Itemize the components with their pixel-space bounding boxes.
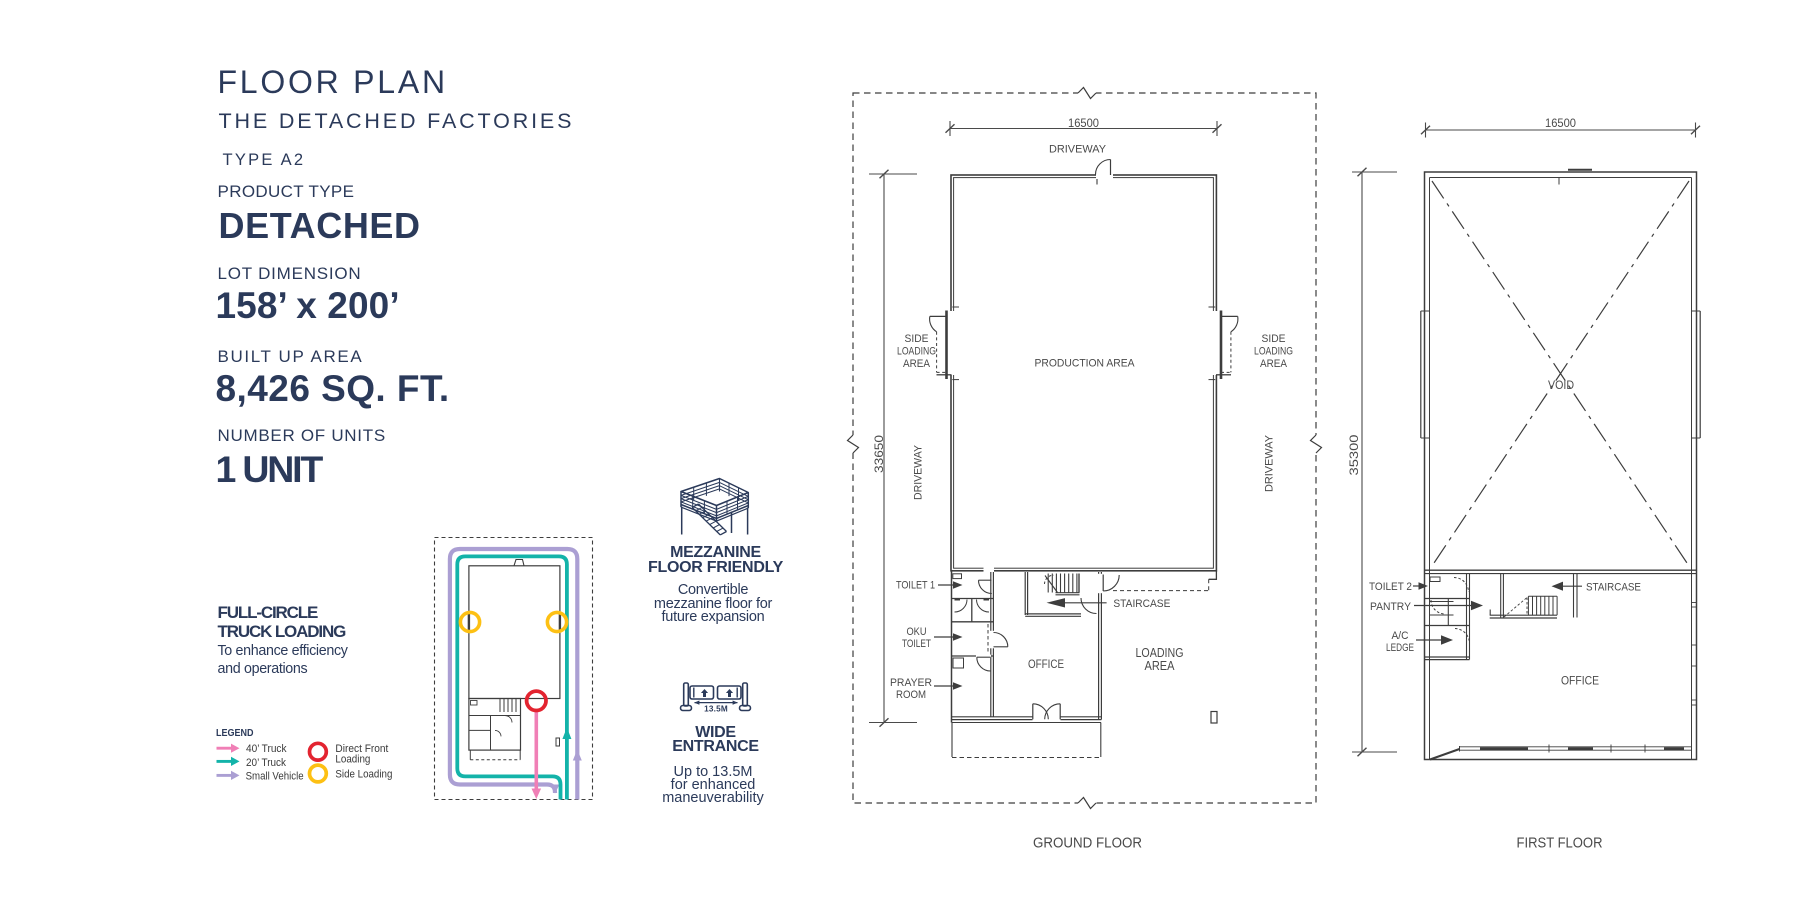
svg-text:PRODUCTION AREA: PRODUCTION AREA [1035, 358, 1135, 370]
svg-text:16500: 16500 [1068, 118, 1099, 130]
svg-text:ROOM: ROOM [896, 689, 926, 701]
svg-text:TOILET 2: TOILET 2 [1369, 581, 1412, 593]
svg-text:TOILET: TOILET [902, 638, 931, 650]
svg-text:PRAYER: PRAYER [890, 677, 932, 689]
svg-text:AREA: AREA [1145, 658, 1175, 673]
svg-text:Loading: Loading [335, 753, 370, 765]
svg-text:Side Loading: Side Loading [335, 768, 392, 780]
svg-text:35300: 35300 [1347, 434, 1361, 475]
svg-text:AREA: AREA [903, 358, 931, 370]
svg-text:LEDGE: LEDGE [1386, 642, 1414, 654]
svg-text:PANTRY: PANTRY [1370, 601, 1411, 613]
svg-text:A/C: A/C [1392, 630, 1409, 642]
svg-text:TOILET 1: TOILET 1 [896, 580, 935, 592]
svg-text:DRIVEWAY: DRIVEWAY [1264, 435, 1276, 492]
svg-text:OKU: OKU [907, 626, 927, 638]
svg-text:16500: 16500 [1545, 118, 1576, 130]
svg-text:LOADING: LOADING [897, 346, 936, 358]
svg-text:VOID: VOID [1548, 380, 1574, 392]
svg-text:Small Vehicle: Small Vehicle [246, 771, 304, 783]
svg-text:LOADING: LOADING [1254, 346, 1293, 358]
svg-text:FIRST FLOOR: FIRST FLOOR [1517, 835, 1603, 852]
svg-text:DRIVEWAY: DRIVEWAY [1049, 143, 1106, 155]
svg-text:OFFICE: OFFICE [1028, 657, 1064, 671]
svg-text:13.5M: 13.5M [704, 705, 728, 714]
svg-text:DRIVEWAY: DRIVEWAY [913, 445, 925, 500]
svg-text:STAIRCASE: STAIRCASE [1113, 598, 1170, 610]
svg-text:STAIRCASE: STAIRCASE [1586, 581, 1641, 593]
svg-text:LEGEND: LEGEND [216, 727, 254, 739]
svg-text:40’ Truck: 40’ Truck [246, 743, 287, 755]
svg-text:33650: 33650 [872, 435, 886, 473]
svg-text:OFFICE: OFFICE [1561, 674, 1599, 688]
svg-text:GROUND FLOOR: GROUND FLOOR [1033, 835, 1142, 852]
svg-text:20’ Truck: 20’ Truck [246, 757, 286, 769]
svg-text:SIDE: SIDE [1262, 333, 1286, 345]
svg-text:SIDE: SIDE [905, 333, 929, 345]
svg-text:AREA: AREA [1260, 358, 1288, 370]
